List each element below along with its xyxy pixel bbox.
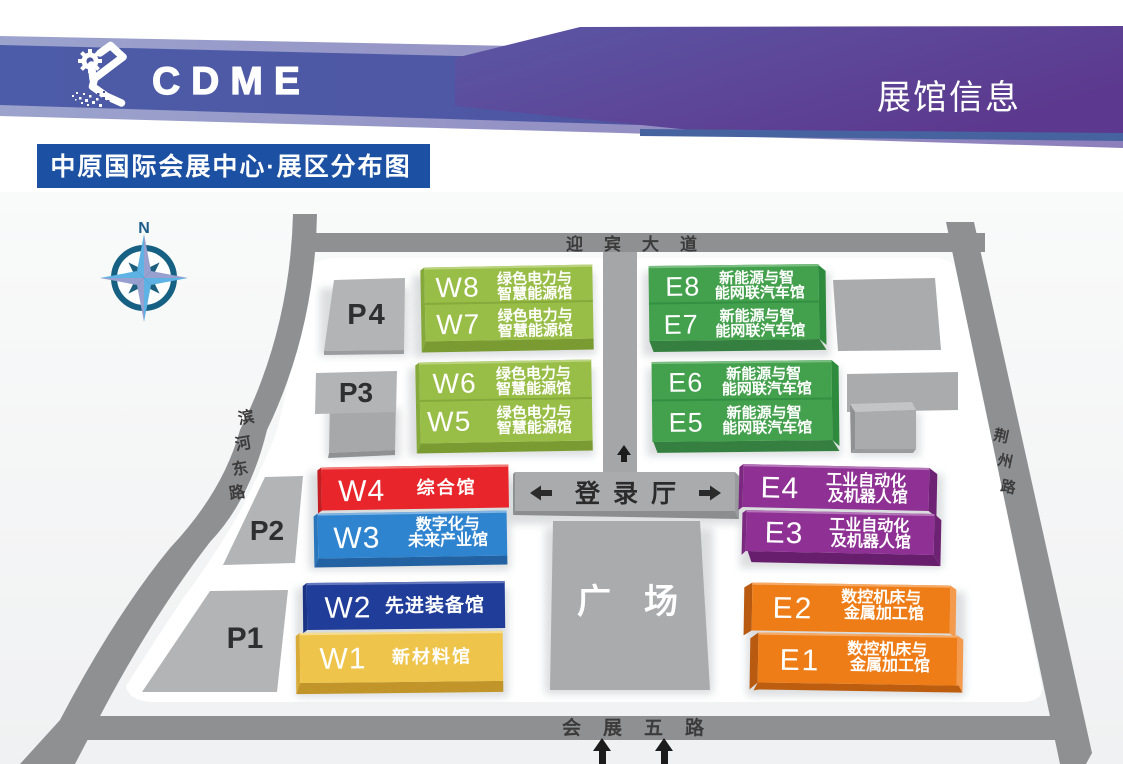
- svg-text:金属加工馆: 金属加工馆: [843, 603, 924, 623]
- svg-text:新材料馆: 新材料馆: [392, 645, 472, 667]
- svg-text:W2: W2: [324, 591, 371, 624]
- svg-text:E5: E5: [668, 407, 703, 437]
- svg-text:登录厅: 登录厅: [574, 479, 689, 508]
- svg-text:E6: E6: [668, 367, 703, 397]
- svg-text:W1: W1: [319, 642, 366, 675]
- svg-text:P2: P2: [250, 515, 284, 546]
- svg-text:广场: 广场: [577, 583, 711, 621]
- svg-text:W7: W7: [436, 308, 481, 340]
- svg-text:能网联汽车馆: 能网联汽车馆: [715, 321, 805, 340]
- svg-text:W4: W4: [338, 474, 386, 508]
- svg-text:未来产业馆: 未来产业馆: [407, 530, 488, 550]
- svg-text:E7: E7: [664, 309, 699, 339]
- svg-text:W6: W6: [432, 367, 477, 399]
- svg-text:E1: E1: [779, 644, 820, 678]
- svg-text:智慧能源馆: 智慧能源馆: [496, 379, 571, 398]
- svg-text:CDME: CDME: [152, 60, 311, 103]
- svg-text:E4: E4: [760, 471, 799, 505]
- svg-text:及机器人馆: 及机器人馆: [831, 531, 911, 552]
- svg-text:P4: P4: [347, 299, 386, 331]
- svg-text:E3: E3: [764, 516, 803, 550]
- svg-text:及机器人馆: 及机器人馆: [828, 486, 908, 507]
- svg-text:综合馆: 综合馆: [416, 476, 476, 498]
- svg-text:能网联汽车馆: 能网联汽车馆: [715, 283, 805, 302]
- svg-text:智慧能源馆: 智慧能源馆: [498, 321, 573, 340]
- svg-text:E2: E2: [772, 592, 813, 626]
- svg-text:会展五路: 会展五路: [562, 716, 726, 739]
- svg-text:E8: E8: [665, 271, 700, 301]
- svg-text:能网联汽车馆: 能网联汽车馆: [722, 418, 812, 437]
- svg-text:智慧能源馆: 智慧能源馆: [497, 418, 572, 437]
- svg-text:迎宾大道: 迎宾大道: [566, 234, 718, 254]
- svg-text:P1: P1: [227, 622, 264, 655]
- svg-text:W8: W8: [435, 271, 480, 303]
- svg-text:中原国际会展中心·展区分布图: 中原国际会展中心·展区分布图: [50, 152, 411, 181]
- svg-text:W5: W5: [427, 406, 472, 438]
- svg-text:智慧能源馆: 智慧能源馆: [497, 284, 572, 303]
- svg-text:展馆信息: 展馆信息: [877, 79, 1021, 117]
- svg-text:能网联汽车馆: 能网联汽车馆: [722, 379, 812, 398]
- svg-text:先进装备馆: 先进装备馆: [385, 593, 485, 617]
- svg-text:N: N: [138, 220, 150, 237]
- svg-text:数字化与: 数字化与: [416, 514, 480, 534]
- svg-text:P3: P3: [339, 377, 373, 408]
- svg-text:金属加工馆: 金属加工馆: [849, 655, 930, 675]
- svg-text:W3: W3: [333, 521, 381, 555]
